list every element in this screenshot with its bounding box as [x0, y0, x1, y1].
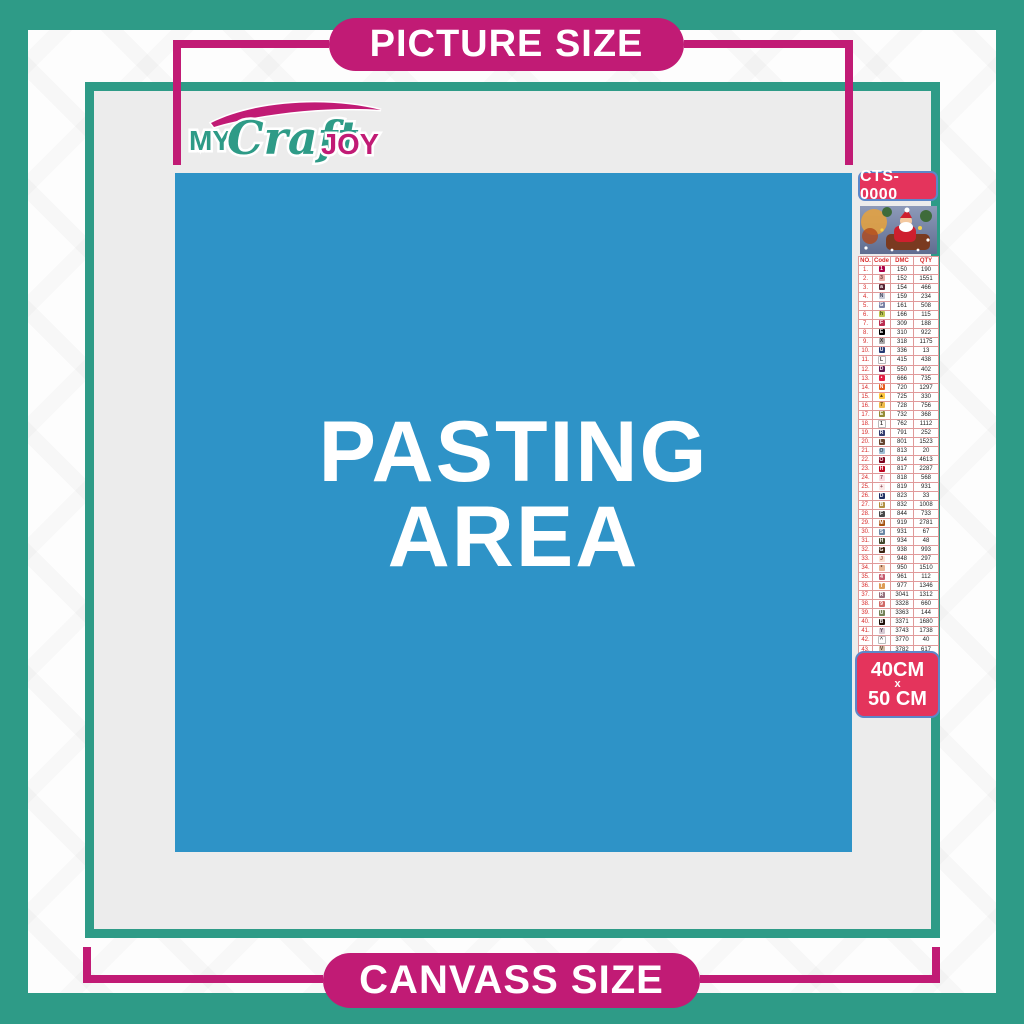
- product-code-label: CTS-0000: [860, 168, 936, 204]
- color-symbol-swatch: 9: [879, 601, 885, 607]
- row-code-symbol-cell: F: [873, 320, 891, 329]
- row-dmc-number: 415: [891, 356, 914, 366]
- color-symbol-swatch: E: [879, 411, 885, 417]
- row-number: 10.: [859, 347, 873, 356]
- row-code-symbol-cell: F: [873, 510, 891, 519]
- color-chart-row: 28.F844733: [859, 510, 939, 519]
- color-symbol-swatch: L: [878, 356, 886, 364]
- row-code-symbol-cell: S: [873, 528, 891, 537]
- color-symbol-swatch: D: [879, 366, 885, 372]
- color-symbol-swatch: R: [879, 592, 885, 598]
- row-number: 37.: [859, 591, 873, 600]
- row-number: 30.: [859, 528, 873, 537]
- row-quantity: 190: [914, 266, 939, 275]
- row-quantity: 330: [914, 392, 939, 401]
- row-dmc-number: 791: [891, 429, 914, 438]
- size-width-label: 40CM: [871, 660, 924, 680]
- row-quantity: 4613: [914, 456, 939, 465]
- row-code-symbol-cell: 7: [873, 401, 891, 410]
- row-quantity: 438: [914, 356, 939, 366]
- row-quantity: 115: [914, 311, 939, 320]
- row-code-symbol-cell: U: [873, 347, 891, 356]
- color-chart-row: 13.•666735: [859, 374, 939, 383]
- product-thumbnail-image: [860, 206, 937, 254]
- color-chart-row: 19.R791252: [859, 429, 939, 438]
- color-chart-row: 21.O81320: [859, 447, 939, 456]
- color-symbol-swatch: O: [879, 448, 885, 454]
- row-dmc-number: 161: [891, 302, 914, 311]
- color-symbol-swatch: N: [879, 293, 885, 299]
- row-code-symbol-cell: ▲: [873, 392, 891, 401]
- row-number: 21.: [859, 447, 873, 456]
- row-dmc-number: 150: [891, 266, 914, 275]
- color-chart-row: 7.F309188: [859, 320, 939, 329]
- color-chart-row: 15.▲725330: [859, 392, 939, 401]
- color-symbol-swatch: R: [879, 430, 885, 436]
- row-dmc-number: 819: [891, 483, 914, 492]
- row-number: 20.: [859, 438, 873, 447]
- pasting-area-label: PASTING AREA: [319, 410, 709, 579]
- row-quantity: 660: [914, 600, 939, 609]
- row-dmc-number: 3328: [891, 600, 914, 609]
- row-code-symbol-cell: B: [873, 618, 891, 627]
- color-chart-row: 36.T9771346: [859, 582, 939, 591]
- color-chart-header-cell: DMC: [891, 257, 914, 266]
- color-chart: NO.CodeDMCQTY 1.11501902.315215513.a1544…: [858, 256, 938, 700]
- row-quantity: 1346: [914, 582, 939, 591]
- color-chart-row: 26.D82333: [859, 492, 939, 501]
- row-number: 22.: [859, 456, 873, 465]
- color-symbol-swatch: G: [879, 547, 885, 553]
- picture-size-banner: PICTURE SIZE: [329, 18, 684, 71]
- color-chart-table: NO.CodeDMCQTY 1.11501902.315215513.a1544…: [858, 256, 939, 700]
- color-chart-row: 32.G938993: [859, 546, 939, 555]
- row-dmc-number: 844: [891, 510, 914, 519]
- row-number: 7.: [859, 320, 873, 329]
- row-quantity: 466: [914, 284, 939, 293]
- row-dmc-number: 159: [891, 293, 914, 302]
- row-number: 32.: [859, 546, 873, 555]
- row-number: 39.: [859, 609, 873, 618]
- row-dmc-number: 3041: [891, 591, 914, 600]
- row-quantity: 1523: [914, 438, 939, 447]
- color-symbol-swatch: X: [879, 338, 885, 344]
- row-code-symbol-cell: H: [873, 537, 891, 546]
- row-dmc-number: 3743: [891, 627, 914, 636]
- color-chart-row: 6.h166115: [859, 311, 939, 320]
- color-chart-header-cell: NO.: [859, 257, 873, 266]
- row-code-symbol-cell: D: [873, 365, 891, 374]
- color-symbol-swatch: h: [879, 311, 885, 317]
- row-quantity: 568: [914, 474, 939, 483]
- color-symbol-swatch: *: [879, 565, 885, 571]
- row-dmc-number: 818: [891, 474, 914, 483]
- row-quantity: 508: [914, 302, 939, 311]
- color-chart-row: 27.B8321008: [859, 501, 939, 510]
- row-code-symbol-cell: *: [873, 564, 891, 573]
- color-symbol-swatch: 4: [879, 574, 885, 580]
- pasting-area-line1: PASTING: [319, 410, 709, 494]
- row-quantity: 2781: [914, 519, 939, 528]
- row-dmc-number: 950: [891, 564, 914, 573]
- row-dmc-number: 154: [891, 284, 914, 293]
- row-dmc-number: 152: [891, 275, 914, 284]
- row-quantity: 402: [914, 365, 939, 374]
- row-quantity: 1175: [914, 338, 939, 347]
- row-quantity: 40: [914, 636, 939, 646]
- row-number: 3.: [859, 284, 873, 293]
- row-code-symbol-cell: G: [873, 546, 891, 555]
- color-symbol-swatch: Y: [879, 628, 885, 634]
- row-quantity: 1112: [914, 419, 939, 429]
- row-quantity: 112: [914, 573, 939, 582]
- color-symbol-swatch: 7: [879, 475, 885, 481]
- color-symbol-swatch: G: [879, 302, 885, 308]
- row-number: 5.: [859, 302, 873, 311]
- row-dmc-number: 813: [891, 447, 914, 456]
- row-code-symbol-cell: D: [873, 492, 891, 501]
- bottom-right-bracket: [700, 947, 940, 983]
- row-code-symbol-cell: T: [873, 582, 891, 591]
- row-code-symbol-cell: G: [873, 302, 891, 311]
- row-quantity: 1312: [914, 591, 939, 600]
- row-quantity: 1680: [914, 618, 939, 627]
- row-number: 26.: [859, 492, 873, 501]
- row-number: 35.: [859, 573, 873, 582]
- row-quantity: 368: [914, 410, 939, 419]
- row-dmc-number: 3371: [891, 618, 914, 627]
- bottom-left-bracket: [83, 947, 323, 983]
- row-code-symbol-cell: E: [873, 329, 891, 338]
- row-quantity: 234: [914, 293, 939, 302]
- color-chart-body: 1.11501902.315215513.a1544664.N1592345.G…: [859, 266, 939, 700]
- color-symbol-swatch: •: [879, 375, 885, 381]
- color-chart-row: 25.+819931: [859, 483, 939, 492]
- row-quantity: 931: [914, 483, 939, 492]
- row-number: 2.: [859, 275, 873, 284]
- row-dmc-number: 919: [891, 519, 914, 528]
- row-quantity: 67: [914, 528, 939, 537]
- color-symbol-swatch: B: [879, 619, 885, 625]
- color-symbol-swatch: U: [879, 347, 885, 353]
- row-dmc-number: 166: [891, 311, 914, 320]
- row-dmc-number: 934: [891, 537, 914, 546]
- row-dmc-number: 948: [891, 555, 914, 564]
- row-code-symbol-cell: 9: [873, 600, 891, 609]
- color-chart-row: 23.H8172287: [859, 465, 939, 474]
- row-quantity: 1297: [914, 383, 939, 392]
- color-symbol-swatch: ▲: [879, 393, 885, 399]
- color-chart-row: 31.H93448: [859, 537, 939, 546]
- color-chart-row: 1.1150190: [859, 266, 939, 275]
- row-number: 14.: [859, 383, 873, 392]
- row-quantity: 297: [914, 555, 939, 564]
- row-number: 36.: [859, 582, 873, 591]
- row-quantity: 733: [914, 510, 939, 519]
- row-quantity: 144: [914, 609, 939, 618]
- row-quantity: 33: [914, 492, 939, 501]
- color-symbol-swatch: 1: [878, 420, 886, 428]
- row-quantity: 2287: [914, 465, 939, 474]
- row-code-symbol-cell: B: [873, 501, 891, 510]
- row-code-symbol-cell: R: [873, 429, 891, 438]
- row-quantity: 1510: [914, 564, 939, 573]
- brand-logo: MY Craft JOY: [181, 96, 396, 168]
- row-number: 18.: [859, 419, 873, 429]
- row-code-symbol-cell: H: [873, 465, 891, 474]
- row-code-symbol-cell: O: [873, 456, 891, 465]
- row-code-symbol-cell: 3: [873, 275, 891, 284]
- row-dmc-number: 814: [891, 456, 914, 465]
- row-number: 15.: [859, 392, 873, 401]
- color-chart-row: 37.R30411312: [859, 591, 939, 600]
- row-code-symbol-cell: L: [873, 438, 891, 447]
- color-chart-row: 24.7818568: [859, 474, 939, 483]
- row-number: 12.: [859, 365, 873, 374]
- row-code-symbol-cell: X: [873, 338, 891, 347]
- color-chart-row: 9.X3181175: [859, 338, 939, 347]
- row-number: 19.: [859, 429, 873, 438]
- picture-size-label: PICTURE SIZE: [370, 23, 644, 66]
- color-chart-row: 8.E310922: [859, 329, 939, 338]
- color-symbol-swatch: J: [879, 556, 885, 562]
- row-quantity: 993: [914, 546, 939, 555]
- row-number: 1.: [859, 266, 873, 275]
- row-number: 4.: [859, 293, 873, 302]
- row-dmc-number: 550: [891, 365, 914, 374]
- color-symbol-swatch: H: [879, 538, 885, 544]
- product-code-badge: CTS-0000: [858, 171, 938, 201]
- color-chart-row: 11.L415438: [859, 356, 939, 366]
- row-code-symbol-cell: U: [873, 609, 891, 618]
- row-dmc-number: 309: [891, 320, 914, 329]
- row-code-symbol-cell: L: [873, 356, 891, 366]
- color-chart-row: 39.U3363144: [859, 609, 939, 618]
- color-chart-row: 41.Y37431738: [859, 627, 939, 636]
- color-chart-row: 22.O8144613: [859, 456, 939, 465]
- color-symbol-swatch: F: [879, 320, 885, 326]
- row-number: 29.: [859, 519, 873, 528]
- row-quantity: 13: [914, 347, 939, 356]
- row-code-symbol-cell: 1: [873, 419, 891, 429]
- color-symbol-swatch: T: [879, 583, 885, 589]
- row-code-symbol-cell: 7: [873, 474, 891, 483]
- row-quantity: 756: [914, 401, 939, 410]
- row-dmc-number: 310: [891, 329, 914, 338]
- row-number: 33.: [859, 555, 873, 564]
- color-chart-row: 5.G161508: [859, 302, 939, 311]
- row-quantity: 735: [914, 374, 939, 383]
- row-dmc-number: 938: [891, 546, 914, 555]
- row-number: 11.: [859, 356, 873, 366]
- row-code-symbol-cell: N: [873, 383, 891, 392]
- color-chart-row: 3.a154466: [859, 284, 939, 293]
- color-symbol-swatch: N: [879, 384, 885, 390]
- row-number: 40.: [859, 618, 873, 627]
- pasting-area: PASTING AREA: [175, 173, 852, 852]
- color-chart-row: 12.D550402: [859, 365, 939, 374]
- row-code-symbol-cell: O: [873, 447, 891, 456]
- row-quantity: 252: [914, 429, 939, 438]
- row-quantity: 1008: [914, 501, 939, 510]
- row-dmc-number: 725: [891, 392, 914, 401]
- row-number: 23.: [859, 465, 873, 474]
- row-dmc-number: 732: [891, 410, 914, 419]
- canvass-size-label: CANVASS SIZE: [359, 958, 664, 1003]
- row-number: 28.: [859, 510, 873, 519]
- row-quantity: 1551: [914, 275, 939, 284]
- color-symbol-swatch: M: [879, 520, 885, 526]
- color-chart-row: 35.4961112: [859, 573, 939, 582]
- row-code-symbol-cell: R: [873, 591, 891, 600]
- row-dmc-number: 817: [891, 465, 914, 474]
- color-chart-header-row: NO.CodeDMCQTY: [859, 257, 939, 266]
- row-dmc-number: 977: [891, 582, 914, 591]
- color-symbol-swatch: 1: [879, 266, 885, 272]
- color-chart-row: 34.*9501510: [859, 564, 939, 573]
- row-number: 13.: [859, 374, 873, 383]
- color-symbol-swatch: 3: [879, 275, 885, 281]
- canvas-size-badge: 40CM x 50 CM: [855, 651, 940, 718]
- color-symbol-swatch: U: [879, 610, 885, 616]
- row-number: 27.: [859, 501, 873, 510]
- color-chart-row: 33.J948297: [859, 555, 939, 564]
- row-code-symbol-cell: ^: [873, 636, 891, 646]
- row-quantity: 1738: [914, 627, 939, 636]
- row-dmc-number: 666: [891, 374, 914, 383]
- row-number: 17.: [859, 410, 873, 419]
- row-code-symbol-cell: a: [873, 284, 891, 293]
- color-symbol-swatch: +: [879, 484, 885, 490]
- color-chart-row: 42.^377040: [859, 636, 939, 646]
- row-quantity: 188: [914, 320, 939, 329]
- color-symbol-swatch: O: [879, 457, 885, 463]
- color-chart-row: 4.N159234: [859, 293, 939, 302]
- logo-word-my: MY: [189, 125, 231, 156]
- color-chart-row: 20.L8011523: [859, 438, 939, 447]
- row-code-symbol-cell: 1: [873, 266, 891, 275]
- row-number: 9.: [859, 338, 873, 347]
- row-number: 8.: [859, 329, 873, 338]
- row-number: 6.: [859, 311, 873, 320]
- row-number: 24.: [859, 474, 873, 483]
- row-code-symbol-cell: •: [873, 374, 891, 383]
- row-dmc-number: 961: [891, 573, 914, 582]
- color-symbol-swatch: H: [879, 466, 885, 472]
- color-chart-row: 29.M9192781: [859, 519, 939, 528]
- color-symbol-swatch: E: [879, 329, 885, 335]
- row-dmc-number: 720: [891, 383, 914, 392]
- color-chart-row: 17.E732368: [859, 410, 939, 419]
- row-number: 25.: [859, 483, 873, 492]
- color-chart-row: 30.S93167: [859, 528, 939, 537]
- row-number: 31.: [859, 537, 873, 546]
- size-height-label: 50 CM: [868, 689, 927, 709]
- color-chart-row: 38.93328660: [859, 600, 939, 609]
- color-chart-header-cell: Code: [873, 257, 891, 266]
- product-thumbnail: [860, 206, 937, 254]
- pasting-area-line2: AREA: [319, 495, 709, 579]
- canvass-size-banner: CANVASS SIZE: [323, 953, 700, 1008]
- row-code-symbol-cell: h: [873, 311, 891, 320]
- row-code-symbol-cell: E: [873, 410, 891, 419]
- color-symbol-swatch: a: [879, 284, 885, 290]
- color-symbol-swatch: ^: [878, 636, 886, 644]
- color-chart-row: 16.7728756: [859, 401, 939, 410]
- row-dmc-number: 762: [891, 419, 914, 429]
- row-code-symbol-cell: N: [873, 293, 891, 302]
- row-dmc-number: 336: [891, 347, 914, 356]
- row-quantity: 48: [914, 537, 939, 546]
- row-code-symbol-cell: Y: [873, 627, 891, 636]
- row-number: 16.: [859, 401, 873, 410]
- row-code-symbol-cell: M: [873, 519, 891, 528]
- row-dmc-number: 801: [891, 438, 914, 447]
- row-dmc-number: 832: [891, 501, 914, 510]
- row-code-symbol-cell: 4: [873, 573, 891, 582]
- row-dmc-number: 3363: [891, 609, 914, 618]
- color-chart-row: 14.N7201297: [859, 383, 939, 392]
- row-dmc-number: 3770: [891, 636, 914, 646]
- row-dmc-number: 318: [891, 338, 914, 347]
- color-chart-row: 40.B33711680: [859, 618, 939, 627]
- color-symbol-swatch: F: [879, 511, 885, 517]
- color-chart-row: 2.31521551: [859, 275, 939, 284]
- row-quantity: 922: [914, 329, 939, 338]
- row-dmc-number: 823: [891, 492, 914, 501]
- color-chart-row: 18.17621112: [859, 419, 939, 429]
- color-symbol-swatch: D: [879, 493, 885, 499]
- color-symbol-swatch: 7: [879, 402, 885, 408]
- brand-logo-image: MY Craft JOY: [181, 96, 396, 168]
- row-number: 34.: [859, 564, 873, 573]
- row-code-symbol-cell: J: [873, 555, 891, 564]
- color-symbol-swatch: L: [879, 439, 885, 445]
- row-dmc-number: 728: [891, 401, 914, 410]
- color-symbol-swatch: B: [879, 502, 885, 508]
- color-chart-header-cell: QTY: [914, 257, 939, 266]
- color-symbol-swatch: S: [879, 529, 885, 535]
- row-number: 38.: [859, 600, 873, 609]
- row-quantity: 20: [914, 447, 939, 456]
- row-dmc-number: 931: [891, 528, 914, 537]
- logo-word-joy: JOY: [321, 129, 379, 161]
- color-chart-row: 10.U33613: [859, 347, 939, 356]
- row-number: 41.: [859, 627, 873, 636]
- row-code-symbol-cell: +: [873, 483, 891, 492]
- row-number: 42.: [859, 636, 873, 646]
